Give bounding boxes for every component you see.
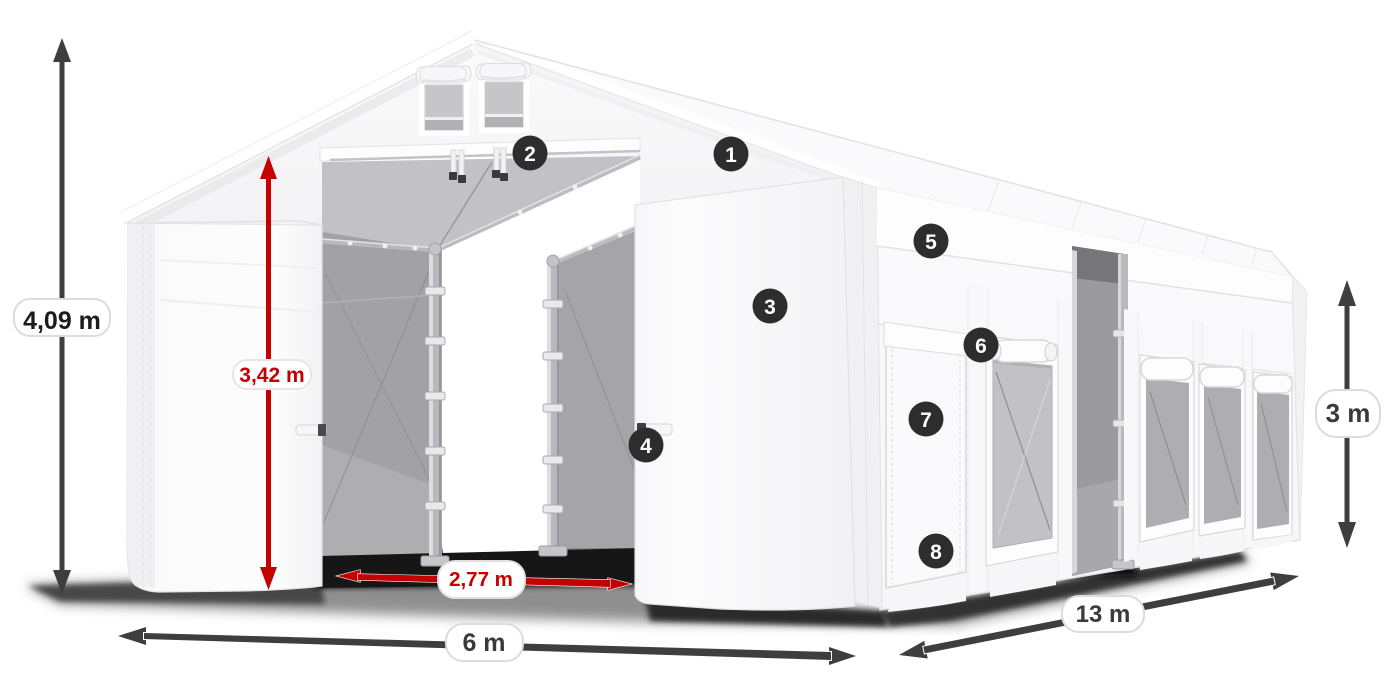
svg-text:3: 3	[764, 296, 776, 319]
svg-text:5: 5	[925, 231, 937, 254]
svg-text:4: 4	[640, 435, 652, 458]
svg-text:6 m: 6 m	[462, 629, 505, 657]
svg-text:8: 8	[930, 541, 942, 564]
svg-text:6: 6	[975, 335, 987, 358]
svg-text:1: 1	[725, 144, 737, 167]
svg-text:7: 7	[920, 409, 932, 432]
svg-text:3,42 m: 3,42 m	[239, 364, 304, 387]
svg-text:13 m: 13 m	[1076, 601, 1131, 628]
svg-text:4,09 m: 4,09 m	[23, 307, 101, 335]
svg-text:2,77 m: 2,77 m	[449, 568, 513, 591]
svg-text:3 m: 3 m	[1326, 398, 1371, 428]
svg-text:2: 2	[524, 143, 536, 166]
